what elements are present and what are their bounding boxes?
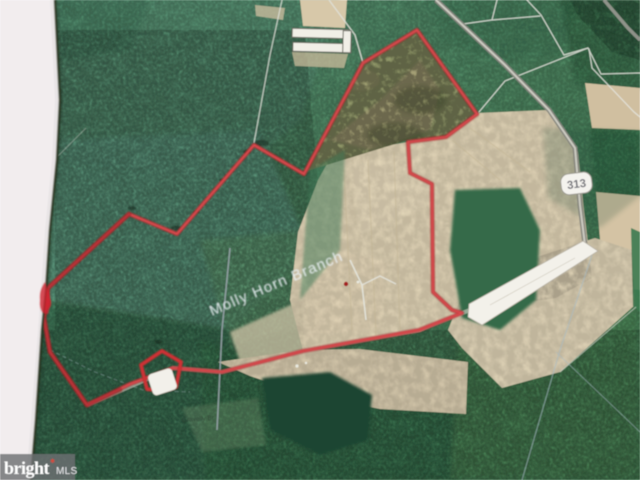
svg-text:✱: ✱ (50, 458, 55, 465)
svg-text:MLS: MLS (56, 466, 77, 477)
svg-text:bright: bright (4, 458, 50, 478)
svg-text:313: 313 (566, 178, 587, 192)
